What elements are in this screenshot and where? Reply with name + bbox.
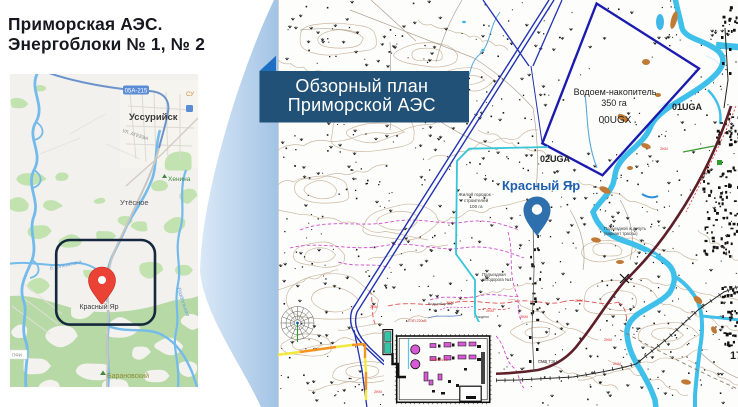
svg-text:ПРИМ АЭС: ПРИМ АЭС (430, 358, 449, 362)
svg-text:2КМ: 2КМ (520, 314, 528, 319)
svg-text:строителей: строителей (464, 197, 489, 203)
svg-text:Уссурийск: Уссурийск (129, 112, 178, 123)
svg-text:Водозабор №2: Водозабор №2 (428, 302, 453, 306)
svg-text:17: 17 (730, 350, 738, 362)
svg-text:05А-215: 05А-215 (125, 89, 148, 95)
svg-text:2КМ: 2КМ (660, 146, 668, 151)
svg-text:Барановский: Барановский (107, 372, 149, 380)
svg-text:01UGA: 01UGA (672, 102, 703, 112)
svg-text:Утёсное: Утёсное (120, 198, 149, 207)
svg-text:(вариант трассы): (вариант трассы) (604, 231, 638, 236)
svg-text:СУ: СУ (186, 92, 194, 98)
svg-text:Жилой городок -: Жилой городок - (458, 191, 494, 197)
svg-text:Красный Яр: Красный Яр (79, 303, 118, 311)
svg-text:ПФИ: ПФИ (12, 353, 22, 358)
svg-text:СМВ ТЭЦ: СМВ ТЭЦ (538, 359, 558, 364)
svg-text:100 га: 100 га (469, 204, 483, 209)
svg-text:Водоем-накопитель: Водоем-накопитель (574, 87, 657, 97)
svg-text:2КМ: 2КМ (613, 361, 621, 366)
svg-text:автодорога №1: автодорога №1 (482, 277, 512, 282)
svg-text:2КМ: 2КМ (370, 304, 378, 309)
svg-text:2КМ: 2КМ (374, 389, 382, 394)
svg-text:00UGX: 00UGX (599, 115, 632, 126)
svg-text:2КМ: 2КМ (575, 298, 583, 303)
svg-text:Красный Яр: Красный Яр (502, 178, 580, 193)
svg-text:2КМ: 2КМ (604, 337, 612, 342)
svg-text:350 га: 350 га (601, 98, 627, 108)
svg-text:Хенина: Хенина (168, 176, 191, 183)
svg-text:02UGA: 02UGA (540, 154, 571, 164)
